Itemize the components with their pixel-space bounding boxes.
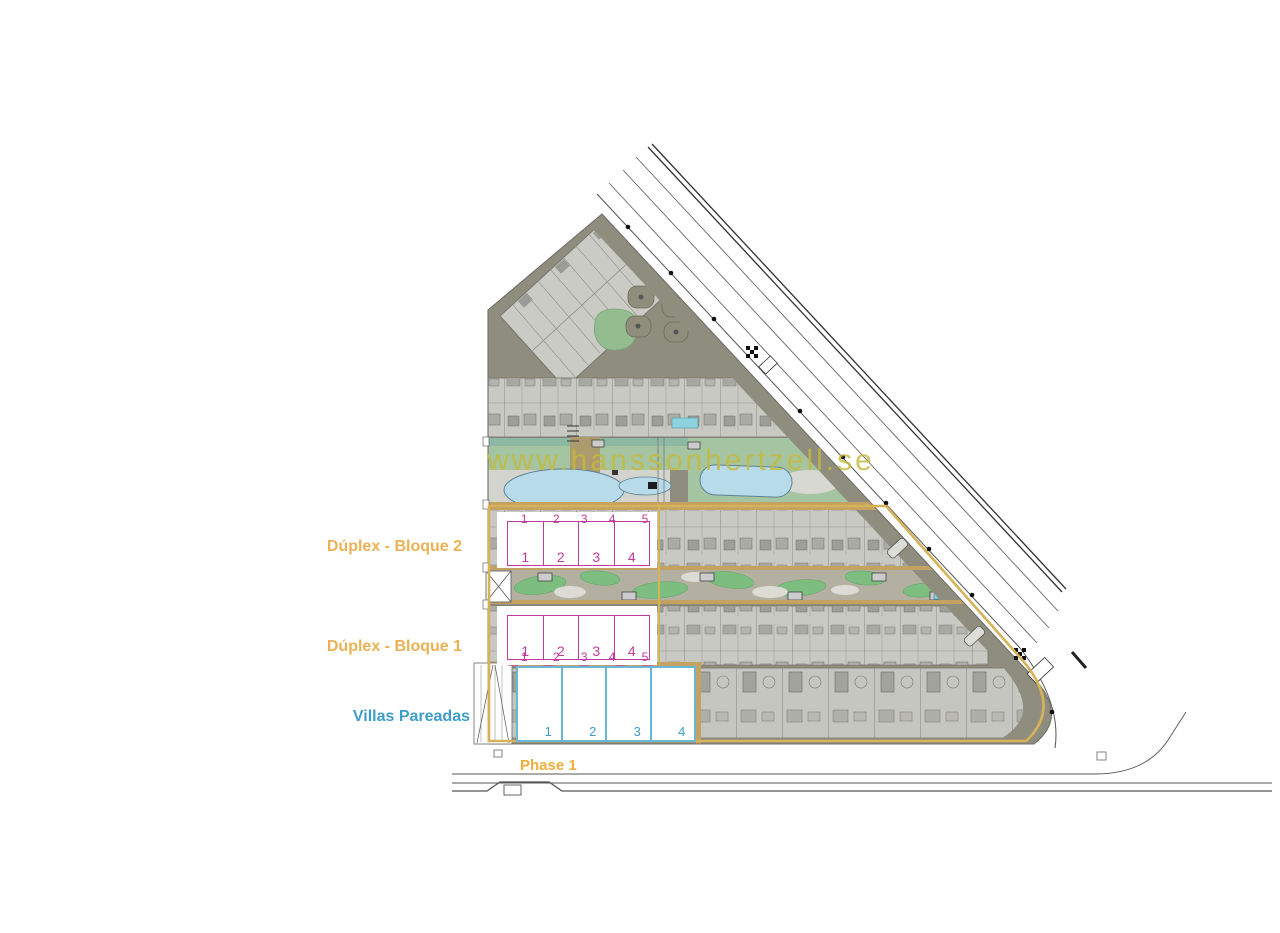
bloque1-label: Dúplex - Bloque 1 bbox=[300, 638, 462, 656]
unit-cell: 2 bbox=[544, 522, 580, 565]
unit-number: 1 bbox=[508, 550, 543, 564]
unit-number: 2 bbox=[544, 550, 579, 564]
small-pool bbox=[672, 418, 698, 428]
unit-cell: 4 bbox=[615, 522, 650, 565]
phase1-label: Phase 1 bbox=[520, 757, 610, 774]
unit-cell: 4 bbox=[652, 668, 695, 740]
unit-cell: 3 bbox=[607, 668, 652, 740]
bloque2-unit-grid: 1 2 3 4 bbox=[507, 521, 650, 566]
site-plan-page: 1 2 3 4 5 1 2 3 4 1 2 3 4 1 2 3 4 5 1 2 … bbox=[0, 0, 1280, 933]
plot-number: 5 bbox=[642, 651, 649, 663]
unit-number: 4 bbox=[615, 550, 650, 564]
plot-number: 2 bbox=[553, 651, 560, 663]
plot-number: 3 bbox=[581, 651, 588, 663]
unit-number: 4 bbox=[661, 725, 704, 738]
watermark-text: www.hanssonhertzell.se bbox=[487, 444, 957, 478]
unit-cell: 1 bbox=[508, 522, 544, 565]
unit-cell: 2 bbox=[563, 668, 608, 740]
ramp bbox=[474, 663, 512, 744]
plot-number: 4 bbox=[609, 651, 616, 663]
bloque2-highlight-box: 1 2 3 4 5 1 2 3 4 bbox=[497, 512, 657, 568]
villas-unit-grid: 1 2 3 4 bbox=[516, 666, 696, 742]
garden-strip bbox=[488, 569, 988, 602]
bloque1-highlight-box: 1 2 3 4 1 2 3 4 5 bbox=[497, 606, 657, 665]
bloque2-label: Dúplex - Bloque 2 bbox=[300, 538, 462, 556]
bloque1-plot-numbers: 1 2 3 4 5 bbox=[497, 651, 657, 665]
unit-cell: 3 bbox=[579, 522, 615, 565]
unit-number: 3 bbox=[579, 550, 614, 564]
unit-cell: 1 bbox=[518, 668, 563, 740]
villas-highlight-box: 1 2 3 4 bbox=[516, 666, 696, 742]
villas-label: Villas Pareadas bbox=[300, 708, 470, 726]
plot-number: 1 bbox=[521, 651, 528, 663]
